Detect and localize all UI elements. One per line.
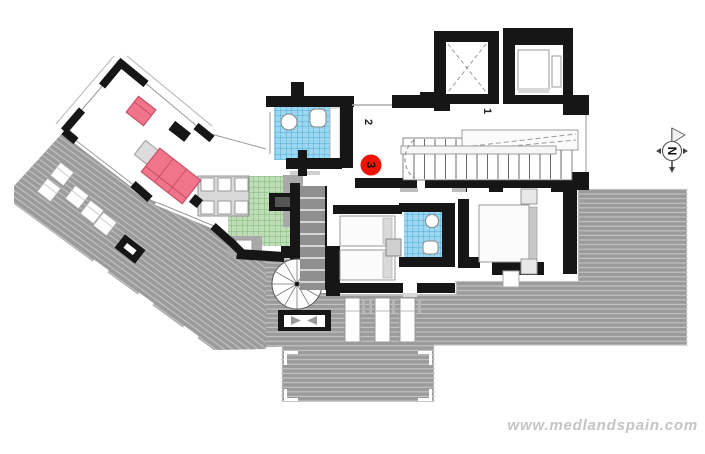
zone-label-1: 1 (481, 108, 493, 114)
wardrobe (300, 186, 326, 290)
dining-set (198, 176, 249, 216)
north-arrow-icon: N (656, 128, 688, 173)
shower-tray (330, 108, 340, 160)
master-nightstand-bottom (521, 259, 537, 274)
exterior-step (503, 271, 519, 287)
master-bed (479, 205, 529, 262)
master-nightstand-top (521, 189, 537, 204)
spiral-center-post (295, 282, 300, 287)
floor-plan-page: 2 1 3 N www.medlandspain.com www.medland… (0, 0, 705, 454)
twin-nightstand (386, 239, 401, 256)
terrace-bench (278, 310, 331, 331)
bathroom-2 (404, 212, 442, 257)
terrace-loungers-bottom (345, 298, 421, 342)
floor-plan-svg: 2 1 3 N www.medlandspain.com www.medland… (0, 0, 705, 454)
washbasin-icon (281, 114, 297, 130)
washbasin2-icon (426, 215, 439, 228)
compass-letter: N (665, 147, 679, 156)
zone-label-3: 3 (364, 162, 378, 169)
elevator-car-sill (518, 88, 549, 93)
toilet2-icon (423, 241, 438, 254)
elevator-car (518, 50, 549, 90)
zone-label-2: 2 (362, 119, 374, 125)
elevator-counterweight (552, 56, 561, 87)
master-headboard (529, 207, 537, 259)
toilet-icon (310, 109, 326, 127)
watermark-text: www.medlandspain.com (508, 417, 698, 434)
watermark: www.medlandspain.com www.medlandspain.co… (508, 417, 700, 435)
stair-handrail (401, 146, 556, 154)
